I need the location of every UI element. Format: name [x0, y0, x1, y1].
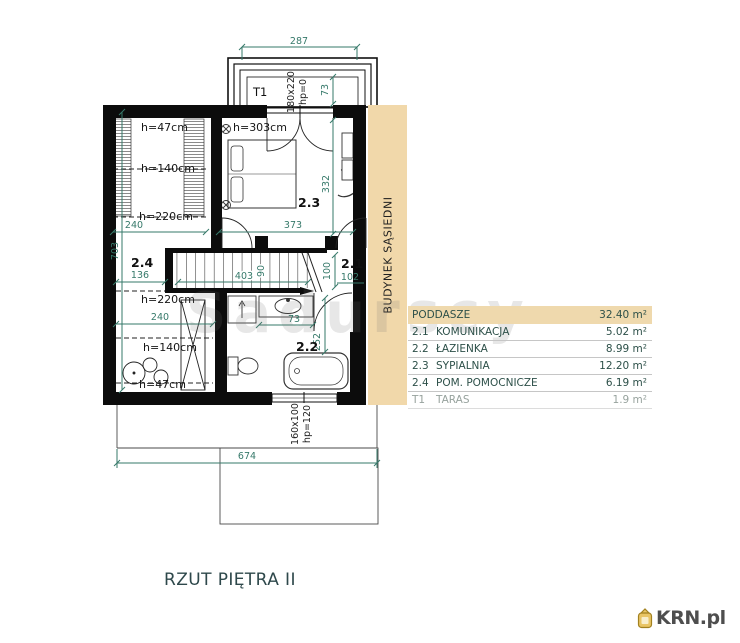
terrace-label: T1: [252, 85, 267, 99]
area-table-header-name: PODDASZE: [412, 309, 470, 321]
neighbor-building-label: BUDYNEK SĄSIEDNI: [381, 196, 394, 313]
area-table-header: PODDASZE 32.40 m²: [408, 306, 652, 324]
table-row: 2.3 SYPIALNIA 12.20 m²: [408, 358, 652, 375]
row-area: 8.99 m²: [606, 343, 647, 355]
row-name: TARAS: [436, 394, 613, 406]
area-table-header-value: 32.40 m²: [599, 309, 647, 321]
dim-bedroom-depth: 332: [321, 175, 332, 193]
dim-landing: 136: [131, 270, 149, 281]
dim-bedroom-width: 373: [284, 220, 302, 231]
wall-cabinets: [342, 133, 353, 180]
terrace-door-sill: hp=0: [298, 79, 309, 105]
house-icon: [637, 608, 653, 629]
floor-plan-page: BUDYNEK SĄSIEDNI: [0, 0, 740, 643]
dim-utility-width: 240: [151, 312, 169, 323]
row-area: 6.19 m²: [606, 377, 647, 389]
row-id: 2.3: [412, 360, 436, 372]
attic-h2: h=140cm: [141, 162, 195, 175]
row-id: 2.4: [412, 377, 436, 389]
room-corridor-label: 2.1: [341, 256, 363, 271]
roof-outline: [117, 405, 378, 524]
attic-h3: h=220cm: [139, 210, 193, 223]
bedroom-ceiling: h=303cm: [233, 121, 287, 134]
terrace-door-size: 180x220: [286, 71, 297, 113]
row-id: 2.1: [412, 326, 436, 338]
bottom-window-sill: hp=120: [302, 405, 313, 443]
dim-stairs-length: 403: [235, 271, 253, 282]
row-id: T1: [412, 394, 436, 406]
dim-left-depth: 703: [110, 242, 121, 260]
attic-h1: h=47cm: [141, 121, 188, 134]
table-row: 2.4 POM. POMOCNICZE 6.19 m²: [408, 375, 652, 392]
dim-total-width: 674: [238, 451, 256, 462]
row-area: 1.9 m²: [613, 394, 647, 406]
room-bathroom-label: 2.2: [296, 339, 318, 354]
room-utility-label: 2.4: [131, 255, 153, 270]
row-name: POM. POMOCNICZE: [436, 377, 606, 389]
table-row: 2.2 ŁAZIENKA 8.99 m²: [408, 341, 652, 358]
row-name: ŁAZIENKA: [436, 343, 606, 355]
row-area: 5.02 m²: [606, 326, 647, 338]
dim-corridor-width2: 102: [341, 272, 359, 283]
row-id: 2.2: [412, 343, 436, 355]
bathtub: [284, 353, 348, 389]
bed: [228, 140, 296, 208]
room-bedroom-label: 2.3: [298, 195, 320, 210]
dim-corridor-width: 100: [322, 262, 333, 280]
bottom-window-size: 160x100: [290, 403, 301, 445]
table-row: T1 TARAS 1.9 m²: [408, 392, 652, 409]
bottom-window: [272, 392, 337, 403]
row-name: KOMUNIKACJA: [436, 326, 606, 338]
dim-terrace-width: 287: [290, 36, 308, 47]
row-area: 12.20 m²: [599, 360, 647, 372]
dim-terrace-depth: 73: [320, 84, 331, 96]
page-title: RZUT PIĘTRA II: [164, 570, 296, 590]
dim-stairs-width: 90: [256, 265, 267, 277]
brand-name: KRN.pl: [656, 607, 726, 629]
brand-logo[interactable]: KRN.pl: [637, 607, 726, 629]
dim-bath-counter: 73: [288, 314, 300, 325]
neighbor-building-strip: BUDYNEK SĄSIEDNI: [368, 105, 407, 405]
area-table: PODDASZE 32.40 m² 2.1 KOMUNIKACJA 5.02 m…: [408, 306, 652, 409]
row-name: SYPIALNIA: [436, 360, 599, 372]
washing-machine: [228, 296, 256, 323]
sink-counter: [259, 296, 313, 317]
utility-h2: h=140cm: [143, 341, 197, 354]
utility-h1: h=220cm: [141, 293, 195, 306]
utility-h3: h=47cm: [139, 378, 186, 391]
table-row: 2.1 KOMUNIKACJA 5.02 m²: [408, 324, 652, 341]
toilet: [228, 357, 258, 375]
